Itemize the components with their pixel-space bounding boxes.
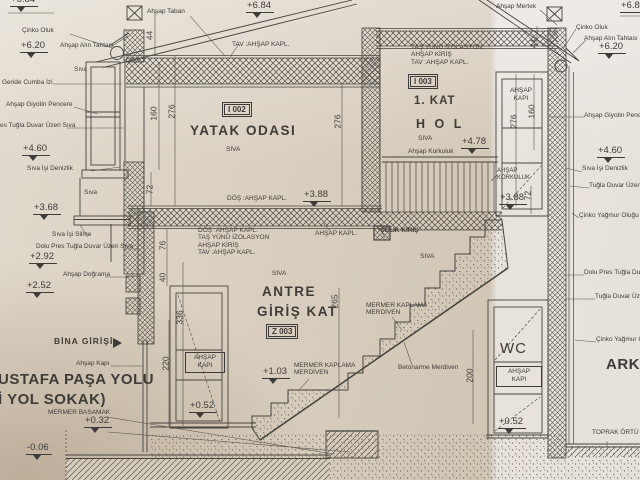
level-triangle-icon: [27, 53, 35, 58]
level-marker-entry-step: +0.32: [84, 416, 112, 433]
dim-160-right: 160: [527, 97, 538, 127]
level-triangle-icon: [269, 379, 277, 384]
spec-line: TAV :AHŞAP KAPL.: [198, 249, 269, 256]
note-cumba-trace: Geride Cumba İzi: [2, 79, 53, 86]
level-marker-stair-landing: +1.03: [262, 367, 290, 384]
stair-label-marble-upper: MERMER KAPLAMA MERDİVEN: [366, 302, 427, 317]
note-sill-left: Sıva İşi Denizlik: [27, 165, 73, 172]
level-value: +0.32: [84, 416, 112, 428]
level-marker-wc-floor: +0.52: [498, 417, 526, 434]
level-value: +4.60: [22, 144, 50, 156]
level-value: +4.60: [597, 146, 625, 158]
level-marker-sidewalk: -0.06: [26, 443, 52, 460]
dim-265: 265: [330, 287, 341, 317]
level-marker-ridge-center: +6.84: [246, 1, 274, 18]
stairwell-finish: SIVA: [420, 253, 434, 260]
spec-line: TAV :AHŞAP KAPL.: [411, 59, 482, 66]
level-triangle-icon: [505, 429, 513, 434]
note-brick-wall-cut: es Tuğla Duvar Üzeri Sıva: [0, 122, 76, 129]
level-triangle-icon: [91, 428, 99, 433]
note-entry-door: Ahşap Kapı: [76, 360, 110, 367]
note-sill-right: Sıva İşi Denizlik: [582, 165, 628, 172]
stair-label-concrete: Betonarme Merdiven: [398, 364, 458, 371]
note-downpipe-right-2: Çinko Yağmur Oluğu: [596, 336, 640, 343]
note-window-right: Ahşap Giyotin Pencere: [584, 112, 640, 119]
note-entrance: BİNA GİRİŞİ: [54, 337, 113, 347]
dim-44-left: 44: [145, 21, 156, 51]
dim-76: 76: [158, 231, 169, 261]
room-code-bedroom: I 002: [224, 104, 250, 115]
level-triangle-icon: [40, 215, 48, 220]
room-name-entry-2: GİRİŞ KAT: [257, 304, 338, 320]
dim-72-right: 72: [523, 181, 534, 211]
level-value: +6.20: [598, 42, 626, 54]
note-molding: Sıva İşi Silme: [52, 231, 91, 238]
spec-line: AHŞAP KİRİŞ: [411, 51, 482, 58]
room-code-hall: I 003: [410, 76, 436, 87]
note-window-left: Ahşap Giyotin Pencere: [6, 101, 72, 108]
room-code-entry: Z 003: [268, 326, 296, 337]
room-finish-hall: SIVA: [418, 135, 432, 142]
entrance-arrow-icon: [113, 338, 122, 348]
hall-ceiling-spec: TAŞ YÜNÜ İZOLASYON AHŞAP KİRİŞ TAV :AHŞA…: [411, 44, 482, 66]
room-finish-bedroom: SIVA: [226, 146, 240, 153]
label-line: MERDİVEN: [294, 369, 355, 376]
level-triangle-icon: [29, 156, 37, 161]
level-triangle-icon: [36, 264, 44, 269]
level-marker-ridge-left: +6.84: [10, 0, 38, 12]
note-soil-cover: TOPRAK ÖRTÜ: [592, 429, 639, 436]
label-line: AHŞAP: [189, 354, 221, 362]
note-attic-floor: Ahşap Taban: [147, 8, 185, 15]
level-triangle-icon: [604, 158, 612, 163]
note-gutter-right: Çinko Oluk: [576, 24, 608, 31]
label-line: KAPI: [500, 376, 538, 384]
hall-railing: [382, 157, 498, 212]
note-bedroom-floor-finish: DÖŞ :AHŞAP KAPL.: [227, 195, 287, 202]
level-value: +3.88: [303, 190, 331, 202]
note-rafter-right: Ahşap Mertek: [496, 3, 536, 10]
note-plaster-cumba: Sıva: [84, 189, 97, 196]
dim-336: 336: [175, 303, 186, 333]
level-value: +6.20: [20, 41, 48, 53]
dim-220: 220: [161, 349, 172, 379]
note-hall-railing: Ahşap Korkuluk: [408, 148, 454, 155]
level-value: +3.68: [33, 203, 61, 215]
level-marker-molding: +3.68: [33, 203, 61, 220]
note-brick-right-2: Dolu Pres Tuğla Duvar Üzeri Sıva: [584, 269, 640, 276]
level-marker-frame: +2.52: [26, 281, 54, 298]
level-triangle-icon: [17, 7, 25, 12]
dim-276-right: 276: [509, 107, 520, 137]
level-value: +6.84: [10, 0, 38, 7]
stair-label-marble-lower: MERMER KAPLAMA MERDİVEN: [294, 362, 355, 377]
level-marker-sill-right: +4.60: [597, 146, 625, 163]
dim-276-bedroom: 276: [333, 107, 344, 137]
level-marker-ridge-right: +6.84: [620, 1, 640, 13]
dim-72-left: 72: [145, 175, 156, 205]
level-value: +6.84: [620, 1, 640, 13]
note-downpipe-right-1: Çinko Yağmur Oluğu: [579, 212, 639, 219]
entry-ceiling-spec: DÖŞ :AHŞAP KAPL. TAŞ YÜNÜ İZOLASYON AHŞA…: [198, 227, 269, 257]
note-brick-right-3: Tuğla Duvar Üzeri Sıva: [595, 293, 640, 300]
room-name-bedroom: YATAK ODASI: [190, 123, 296, 139]
level-marker-eave-right: +6.20: [598, 42, 626, 59]
note-clad: AHŞAP KAPL.: [315, 230, 357, 237]
level-triangle-icon: [33, 293, 41, 298]
dim-44-right: 44: [529, 29, 540, 59]
architectural-section-sheet: +6.84 Çinko Oluk +6.20 Ahşap Alın Tahtas…: [0, 0, 640, 480]
spec-line: TAŞ YÜNÜ İZOLASYON: [198, 234, 269, 241]
label-line: KAPI: [189, 362, 221, 370]
note-gutter-left: Çinko Oluk: [22, 27, 54, 34]
level-triangle-icon: [253, 13, 261, 18]
note-fascia-left: Ahşap Alın Tahtası: [60, 42, 114, 49]
note-plaster-left: Sıva: [74, 66, 87, 73]
label-line: AHŞAP: [500, 368, 538, 376]
dim-160-left: 160: [149, 99, 160, 129]
level-value: +2.52: [26, 281, 54, 293]
room-name-garden: ARKA: [606, 356, 640, 373]
level-triangle-icon: [506, 205, 514, 210]
note-frame: Ahşap Doğrama: [63, 271, 110, 278]
dim-200: 200: [465, 361, 476, 391]
door-label-wc: AHŞAP KAPI: [496, 366, 542, 387]
level-marker-entry-floor: +0.52: [189, 401, 217, 418]
level-value: -0.06: [26, 443, 52, 455]
room-name-hall: H O L: [416, 117, 464, 131]
street-name-1: USTAFA PAŞA YOLU: [0, 371, 154, 388]
street-name-2: İ YOL SOKAK): [0, 391, 106, 408]
level-marker-bedroom-floor: +3.88: [303, 190, 331, 207]
level-triangle-icon: [310, 202, 318, 207]
level-marker-eave-left: +6.20: [20, 41, 48, 58]
room-finish-entry: SIVA: [272, 270, 286, 277]
level-triangle-icon: [468, 149, 476, 154]
level-triangle-icon: [605, 54, 613, 59]
level-marker-cumba: +2.92: [29, 252, 57, 269]
dim-276-left: 276: [167, 97, 178, 127]
note-steel-beam: ÇELİK KİRİŞ: [380, 227, 419, 234]
level-triangle-icon: [196, 413, 204, 418]
level-value: +0.52: [189, 401, 217, 413]
level-value: +4.78: [461, 137, 489, 149]
note-bedroom-ceiling: TAV :AHŞAP KAPL.: [232, 41, 289, 48]
note-brick-right-1: Tuğla Duvar Üzeri Sıva: [589, 182, 640, 189]
note-brick-wall: Dolu Pres Tuğla Duvar Üzeri Sıva: [36, 243, 133, 250]
level-value: +2.92: [29, 252, 57, 264]
room-name-entry-1: ANTRE: [262, 284, 316, 300]
dim-40: 40: [158, 263, 169, 293]
level-value: +1.03: [262, 367, 290, 379]
level-marker-railing: +4.78: [461, 137, 489, 154]
spec-line: AHŞAP KİRİŞ: [198, 242, 269, 249]
level-value: +0.52: [498, 417, 526, 429]
label-line: MERDİVEN: [366, 309, 427, 316]
level-marker-sill-left: +4.60: [22, 144, 50, 161]
label-line: AHŞAP: [506, 87, 536, 95]
door-label-entry: AHŞAP KAPI: [185, 352, 225, 373]
room-name-wc: WC: [500, 340, 527, 357]
level-value: +6.84: [246, 1, 274, 13]
floor-label-hall: 1. KAT: [414, 95, 456, 108]
level-triangle-icon: [33, 455, 41, 460]
